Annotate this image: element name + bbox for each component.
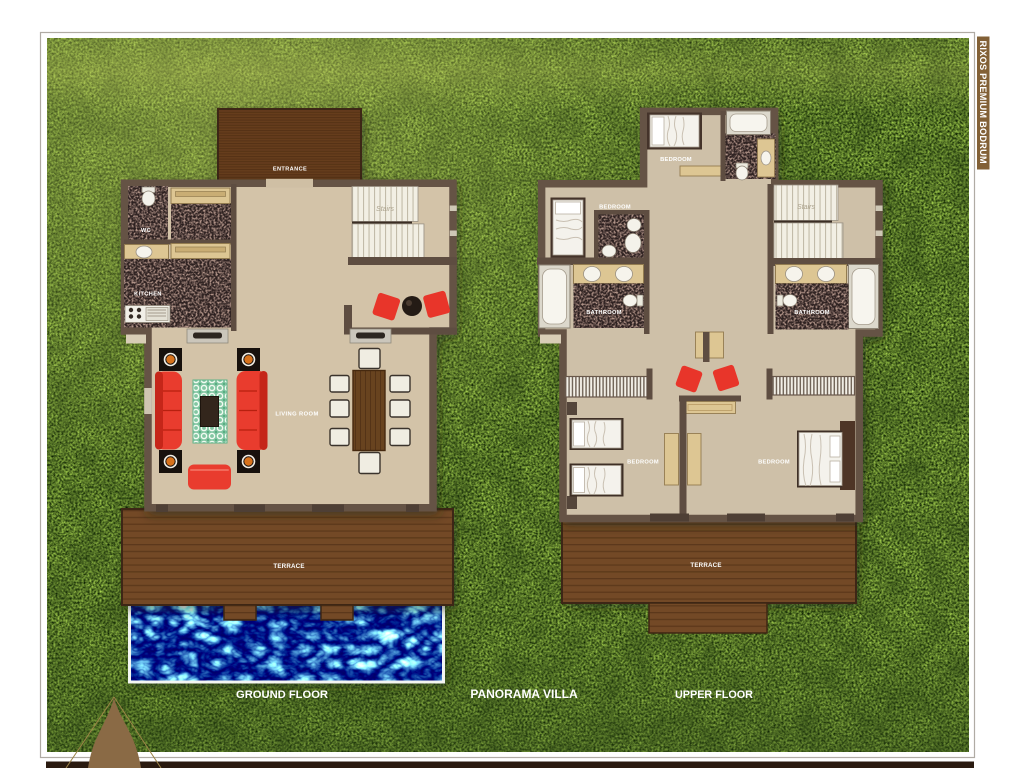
svg-text:BATHROOM: BATHROOM bbox=[586, 310, 621, 316]
svg-text:GROUND FLOOR: GROUND FLOOR bbox=[236, 689, 328, 701]
svg-text:BEDROOM: BEDROOM bbox=[599, 205, 631, 211]
svg-text:BATHROOM: BATHROOM bbox=[794, 310, 829, 316]
svg-text:RIXOS PREMIUM BODRUM: RIXOS PREMIUM BODRUM bbox=[978, 41, 988, 165]
svg-text:TERRACE: TERRACE bbox=[690, 562, 721, 569]
svg-text:BEDROOM: BEDROOM bbox=[660, 157, 692, 163]
svg-text:PANORAMA VILLA: PANORAMA VILLA bbox=[470, 687, 578, 701]
svg-text:Stairs: Stairs bbox=[797, 204, 815, 211]
svg-text:BEDROOM: BEDROOM bbox=[627, 460, 659, 466]
svg-text:UPPER FLOOR: UPPER FLOOR bbox=[675, 689, 753, 701]
svg-text:Stairs: Stairs bbox=[376, 206, 394, 213]
svg-text:BEDROOM: BEDROOM bbox=[758, 460, 790, 466]
svg-text:TERRACE: TERRACE bbox=[273, 563, 304, 570]
svg-text:ENTRANCE: ENTRANCE bbox=[273, 167, 307, 173]
svg-text:WC: WC bbox=[141, 228, 151, 234]
svg-text:LIVING ROOM: LIVING ROOM bbox=[275, 412, 318, 418]
svg-text:KITCHEN: KITCHEN bbox=[134, 292, 162, 298]
